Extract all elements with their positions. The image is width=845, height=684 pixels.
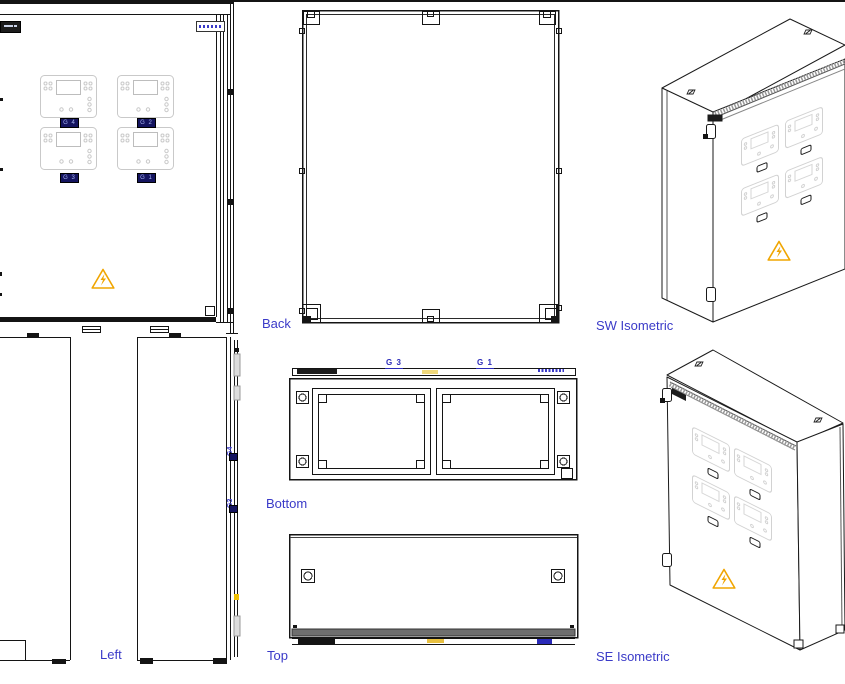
back-view[interactable] bbox=[255, 0, 565, 340]
badge-g2: G 2 bbox=[137, 118, 156, 128]
bottom-view-label: Bottom bbox=[266, 497, 307, 511]
hinge bbox=[663, 554, 672, 567]
sw-isometric-label: SW Isometric bbox=[596, 319, 673, 333]
left-view-label: Left bbox=[100, 648, 122, 662]
top-view-label: Top bbox=[267, 649, 288, 663]
iso-nameplate bbox=[708, 115, 722, 121]
sw-isometric-view[interactable] bbox=[595, 0, 845, 340]
badge-g4: G 4 bbox=[60, 118, 79, 128]
bottom-view-gland-label-g1: G 1 bbox=[476, 359, 494, 369]
badge-g3: G 3 bbox=[60, 173, 79, 183]
se-isometric-view[interactable] bbox=[650, 340, 845, 670]
badge-g1: G 1 bbox=[137, 173, 156, 183]
bottom-view[interactable] bbox=[280, 355, 590, 500]
back-view-label: Back bbox=[262, 317, 291, 331]
front-view[interactable] bbox=[0, 0, 245, 340]
bottom-view-gland-label-g3: G 3 bbox=[385, 359, 403, 369]
cad-multiview-drawing: G 4 G 2 G 3 G 1 Back bbox=[0, 0, 845, 684]
hinge bbox=[707, 288, 716, 302]
top-view[interactable] bbox=[280, 525, 590, 670]
left-view-g4-block bbox=[229, 453, 238, 461]
left-view-g3-block bbox=[229, 505, 238, 513]
front-terminal-label bbox=[196, 21, 225, 32]
side-views[interactable] bbox=[0, 330, 250, 684]
front-nameplate bbox=[0, 21, 21, 33]
se-isometric-label: SE Isometric bbox=[596, 650, 670, 664]
